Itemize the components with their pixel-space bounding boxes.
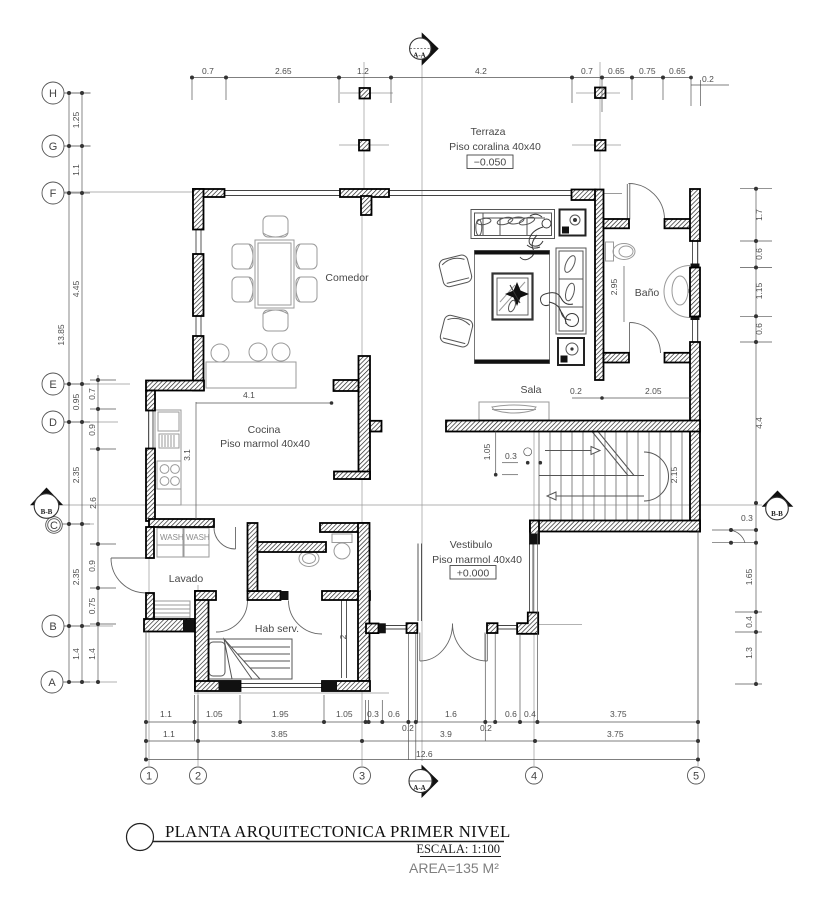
svg-text:1.2: 1.2 [357, 66, 369, 76]
svg-text:A-A: A-A [413, 784, 425, 792]
svg-text:0.6: 0.6 [754, 248, 764, 260]
svg-text:1.1: 1.1 [163, 729, 175, 739]
svg-text:1.05: 1.05 [482, 443, 492, 460]
svg-text:1.3: 1.3 [744, 647, 754, 659]
svg-text:0.7: 0.7 [581, 66, 593, 76]
svg-text:Comedor: Comedor [325, 272, 369, 284]
svg-text:Piso coralina 40x40: Piso coralina 40x40 [449, 141, 541, 153]
svg-text:0.9: 0.9 [87, 424, 97, 436]
svg-text:13.85: 13.85 [56, 324, 66, 346]
svg-text:0.3: 0.3 [505, 451, 517, 461]
svg-text:H: H [49, 88, 57, 100]
svg-text:1.1: 1.1 [71, 164, 81, 176]
svg-text:2: 2 [338, 634, 348, 639]
svg-text:1.4: 1.4 [87, 648, 97, 660]
svg-text:0.6: 0.6 [754, 323, 764, 335]
svg-text:WASH: WASH [186, 533, 210, 542]
svg-text:0.7: 0.7 [202, 66, 214, 76]
svg-text:2.65: 2.65 [275, 66, 292, 76]
svg-text:B-B: B-B [771, 510, 783, 518]
svg-text:0.9: 0.9 [87, 560, 97, 572]
svg-text:Terraza: Terraza [470, 126, 505, 138]
svg-text:1.95: 1.95 [272, 709, 289, 719]
svg-text:0.2: 0.2 [570, 386, 582, 396]
svg-text:3.75: 3.75 [607, 729, 624, 739]
svg-text:0.65: 0.65 [669, 66, 686, 76]
svg-text:1: 1 [146, 771, 152, 783]
svg-text:Piso marmol 40x40: Piso marmol 40x40 [220, 438, 310, 450]
svg-text:0.6: 0.6 [388, 709, 400, 719]
svg-text:0.95: 0.95 [71, 393, 81, 410]
svg-text:0.2: 0.2 [702, 74, 714, 84]
svg-text:Baño: Baño [635, 287, 660, 299]
svg-text:D: D [49, 417, 57, 429]
svg-text:4.1: 4.1 [243, 390, 255, 400]
svg-text:+0.000: +0.000 [457, 568, 490, 580]
svg-text:0.3: 0.3 [741, 513, 753, 523]
svg-text:4.2: 4.2 [475, 66, 487, 76]
svg-text:1.25: 1.25 [71, 111, 81, 128]
svg-text:A: A [48, 677, 56, 689]
svg-text:Cocina: Cocina [248, 424, 281, 436]
svg-text:Sala: Sala [520, 384, 541, 396]
svg-text:4: 4 [531, 771, 537, 783]
svg-text:2.95: 2.95 [609, 278, 619, 295]
svg-text:4.4: 4.4 [754, 417, 764, 429]
svg-text:0.4: 0.4 [744, 616, 754, 628]
svg-text:1.1: 1.1 [160, 709, 172, 719]
svg-text:E: E [49, 379, 56, 391]
svg-text:A-A: A-A [413, 52, 425, 60]
svg-text:0.65: 0.65 [608, 66, 625, 76]
svg-text:Lavado: Lavado [169, 573, 204, 585]
svg-text:F: F [50, 188, 57, 200]
svg-text:5: 5 [693, 771, 699, 783]
svg-text:0.6: 0.6 [505, 709, 517, 719]
svg-text:1.7: 1.7 [754, 209, 764, 221]
svg-text:0.4: 0.4 [524, 709, 536, 719]
svg-text:1.6: 1.6 [445, 709, 457, 719]
svg-text:1.4: 1.4 [71, 648, 81, 660]
svg-text:B: B [49, 621, 56, 633]
svg-text:ESCALA: 1:100: ESCALA: 1:100 [416, 842, 500, 856]
svg-text:2.15: 2.15 [669, 466, 679, 483]
svg-text:3.85: 3.85 [271, 729, 288, 739]
svg-text:G: G [49, 141, 58, 153]
svg-text:C: C [50, 520, 58, 532]
svg-text:0.3: 0.3 [367, 709, 379, 719]
svg-text:1.65: 1.65 [744, 568, 754, 585]
svg-text:WASH: WASH [160, 533, 184, 542]
svg-text:3.1: 3.1 [182, 449, 192, 461]
svg-text:0.2: 0.2 [480, 723, 492, 733]
svg-text:PLANTA ARQUITECTONICA PRIMER N: PLANTA ARQUITECTONICA PRIMER NIVEL [165, 822, 511, 841]
svg-text:4.45: 4.45 [71, 280, 81, 297]
svg-text:2: 2 [195, 771, 201, 783]
svg-text:0.2: 0.2 [402, 723, 414, 733]
svg-text:3: 3 [359, 771, 365, 783]
svg-text:2.6: 2.6 [88, 497, 98, 509]
svg-text:Vestibulo: Vestibulo [450, 539, 493, 551]
svg-text:3.75: 3.75 [610, 709, 627, 719]
svg-text:0.7: 0.7 [87, 388, 97, 400]
svg-text:2.35: 2.35 [71, 466, 81, 483]
svg-text:1.15: 1.15 [754, 282, 764, 299]
svg-text:2.35: 2.35 [71, 568, 81, 585]
svg-text:2.05: 2.05 [645, 386, 662, 396]
svg-text:0.75: 0.75 [87, 597, 97, 614]
svg-text:12.6: 12.6 [416, 749, 433, 759]
svg-text:−0.050: −0.050 [474, 157, 507, 169]
svg-text:0.75: 0.75 [639, 66, 656, 76]
svg-text:Hab serv.: Hab serv. [255, 623, 299, 635]
svg-text:Piso marmol 40x40: Piso marmol 40x40 [432, 554, 522, 566]
svg-text:1.05: 1.05 [336, 709, 353, 719]
svg-text:1.05: 1.05 [206, 709, 223, 719]
svg-text:B-B: B-B [41, 508, 53, 516]
svg-text:AREA=135 M²: AREA=135 M² [409, 860, 499, 876]
svg-text:3.9: 3.9 [440, 729, 452, 739]
